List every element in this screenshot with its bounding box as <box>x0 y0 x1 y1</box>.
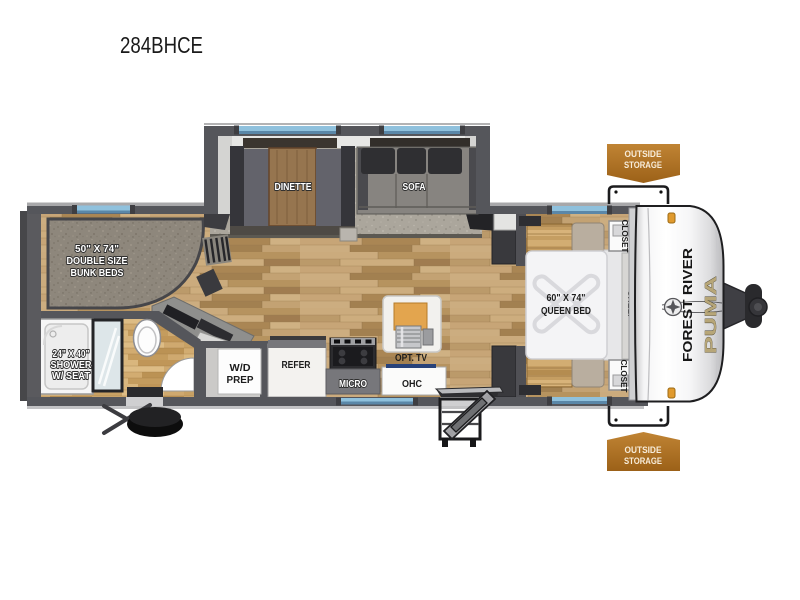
svg-text:PREP: PREP <box>227 375 254 386</box>
svg-text:BUNK BEDS: BUNK BEDS <box>71 268 124 279</box>
svg-text:OHC: OHC <box>402 378 422 390</box>
svg-text:W/D: W/D <box>230 363 251 374</box>
svg-text:SOFA: SOFA <box>403 182 426 193</box>
svg-text:QUEEN BED: QUEEN BED <box>541 306 591 317</box>
svg-text:PUMA: PUMA <box>703 275 720 354</box>
svg-text:W/ SEAT: W/ SEAT <box>52 371 90 382</box>
svg-text:OUTSIDE: OUTSIDE <box>625 445 662 455</box>
svg-text:24" X 40": 24" X 40" <box>53 349 90 360</box>
svg-text:DINETTE: DINETTE <box>275 182 312 193</box>
svg-text:60" X 74": 60" X 74" <box>547 293 586 304</box>
svg-text:REFER: REFER <box>282 360 312 371</box>
svg-text:STORAGE: STORAGE <box>624 160 662 170</box>
svg-text:STORAGE: STORAGE <box>624 456 662 466</box>
svg-text:SHOWER: SHOWER <box>51 360 93 371</box>
svg-text:FOREST RIVER: FOREST RIVER <box>681 248 695 362</box>
svg-text:OPT. TV: OPT. TV <box>395 353 427 364</box>
svg-text:50" X 74": 50" X 74" <box>75 244 119 255</box>
svg-text:CLOSET: CLOSET <box>619 360 629 394</box>
svg-text:DOUBLE SIZE: DOUBLE SIZE <box>67 256 128 267</box>
svg-text:284BHCE: 284BHCE <box>120 32 203 58</box>
svg-text:MICRO: MICRO <box>339 379 367 390</box>
svg-text:OUTSIDE: OUTSIDE <box>625 149 662 159</box>
